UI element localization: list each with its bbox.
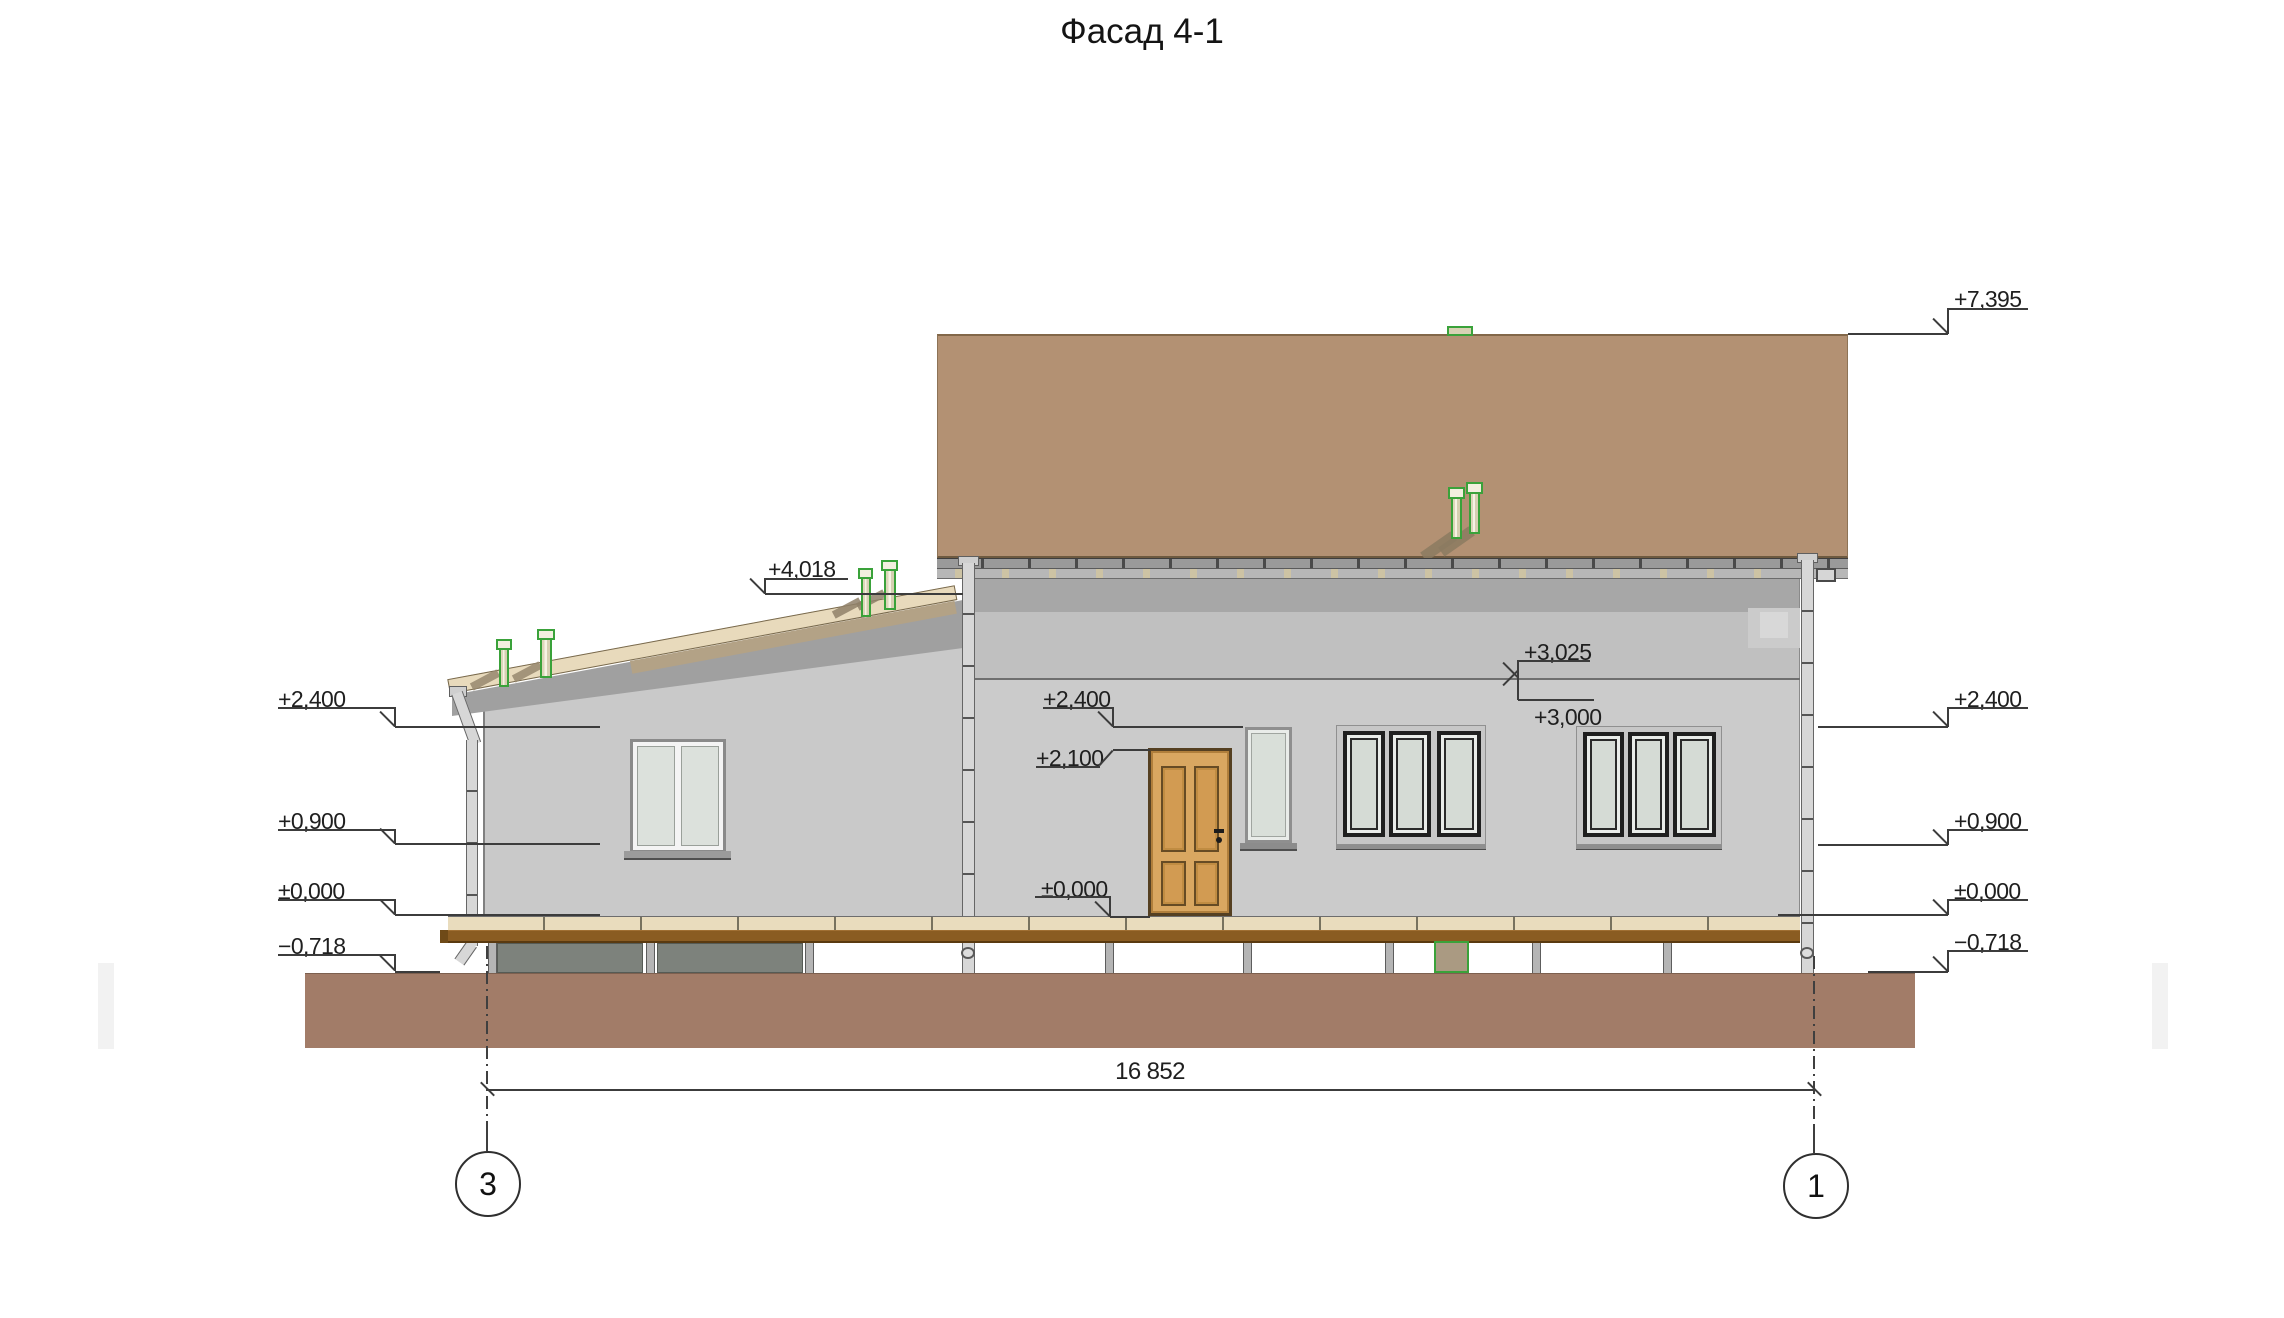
level-mark-underline [1948,308,2028,310]
door-panel [1194,861,1219,906]
level-mark-label: +0,900 [1954,808,2021,835]
door-handle-icon [1216,837,1222,843]
level-line [1848,333,1948,335]
level-mark-underline [1035,896,1110,898]
downspout-right-outlet [1800,947,1814,959]
foundation-pile [1243,943,1252,973]
level-mark-underline [278,954,395,956]
level-mark-underline [1036,766,1100,768]
level-mark-label: +3,025 [1524,639,1591,666]
grid-axis-line [486,1126,488,1151]
facade-drawing: Фасад 4-1 [0,0,2284,1318]
window-sash [1583,732,1624,837]
window-pane [681,746,719,846]
grid-axis-label: 3 [479,1166,497,1203]
window-sash [1437,731,1481,837]
level-line [1113,726,1243,728]
vent-pipe-icon [1466,482,1483,494]
grid-axis-bubble-3: 3 [455,1151,521,1217]
crawlspace-vent [1434,941,1469,973]
wall-shadow-band [964,579,1799,612]
floor-joist-band [448,930,1800,943]
downspout-left [962,563,975,973]
level-mark-label: ±0,000 [1954,878,2021,905]
level-line [1818,844,1948,846]
level-mark-underline [1948,829,2028,831]
level-mark-underline [1948,950,2028,952]
level-line [395,843,600,845]
attic-floor-line [963,678,1800,680]
main-roof [937,334,1848,558]
vent-pipe-icon [496,639,512,650]
narrow-window-sill [1240,843,1297,851]
triple-window-right-sill [1576,845,1722,850]
vent-pipe-icon [861,579,871,617]
eave-soffit [937,569,1848,579]
foundation-pile [1663,943,1672,973]
grid-axis-line [1813,1126,1815,1153]
drawing-title: Фасад 4-1 [1060,12,1224,52]
level-mark-label: +0,900 [278,808,345,835]
window-sash [1389,731,1431,837]
window-pane [1251,733,1286,837]
level-line [1113,749,1150,751]
vent-pipe-icon [858,568,873,579]
triple-window-left-sill [1336,845,1486,850]
level-mark-underline [1948,899,2028,901]
ground-edge-fade-right [2152,963,2168,1049]
dimension-line [487,1089,1814,1091]
door-panel [1161,766,1186,852]
foundation-post [646,943,655,973]
downspout-bracket [1816,568,1836,582]
level-line [395,971,440,973]
vent-pipe-icon [1448,487,1465,499]
wall-patch [1760,612,1788,638]
foundation-pile [1385,943,1394,973]
level-line [1778,914,1948,916]
level-line [765,593,963,595]
window-sash [1673,732,1716,837]
level-mark-underline [1948,707,2028,709]
dimension-text: 16 852 [1060,1058,1240,1086]
ground-edge-fade-left [98,963,114,1049]
window-sash [1628,732,1669,837]
eave-fascia [937,558,1848,569]
annex-window-sill [624,851,731,860]
level-mark-drop [1517,678,1519,700]
vent-pipe-icon [881,560,898,571]
level-mark-label: +2,100 [1036,745,1103,772]
vent-pipe-icon [499,650,509,687]
vent-pipe-icon [537,629,555,640]
level-mark-label: ±0,000 [1041,876,1108,903]
level-mark-drop [1947,308,1949,334]
level-mark-label: +3,000 [1534,704,1601,731]
level-line [1868,971,1948,973]
level-mark-underline [1518,660,1590,662]
level-mark-underline [278,707,395,709]
window-pane [637,746,675,846]
level-mark-label: −0,718 [278,933,345,960]
narrow-window [1245,727,1292,843]
vent-pipe-icon [540,640,552,678]
foundation-post [488,943,497,973]
ridge-vent-icon [1447,326,1473,336]
door-handle-icon [1214,829,1224,833]
annex-wall-left-edge [483,700,485,916]
vent-pipe-icon [884,571,896,610]
level-mark-label: −0,718 [1954,929,2021,956]
foundation-skirt-panel [657,943,803,973]
annex-window [630,739,726,853]
level-line [395,914,600,916]
level-mark-underline [278,829,395,831]
level-mark-label: +2,400 [1954,686,2021,713]
wall-mid-band [964,612,1799,680]
floor-joist-end [440,930,448,943]
ground [305,973,1915,1048]
vent-pipe-icon [1451,499,1462,539]
level-mark-underline [1518,699,1594,701]
grid-axis-label: 1 [1807,1168,1825,1205]
level-line [1818,726,1948,728]
vent-pipe-icon [1469,494,1480,534]
foundation-skirt-panel [497,943,643,973]
downspout-left-outlet [961,947,975,959]
level-mark-underline [278,899,395,901]
foundation-pile [1532,943,1541,973]
level-mark-label: ±0,000 [278,878,345,905]
grid-axis-line [1813,956,1815,1126]
level-line [395,726,600,728]
downspout-right [1801,560,1814,973]
level-line [1110,916,1150,918]
door-panel [1161,861,1186,906]
window-sash [1343,731,1385,837]
annex-downspout-outlet [454,941,476,966]
floor-deck-band [448,916,1800,930]
grid-axis-bubble-1: 1 [1783,1153,1849,1219]
foundation-pile [1105,943,1114,973]
level-mark-underline [765,578,848,580]
grid-axis-line [486,946,488,1126]
level-mark-underline [1043,707,1113,709]
level-mark-label: +2,400 [1043,686,1110,713]
foundation-post [805,943,814,973]
level-mark-label: +2,400 [278,686,345,713]
